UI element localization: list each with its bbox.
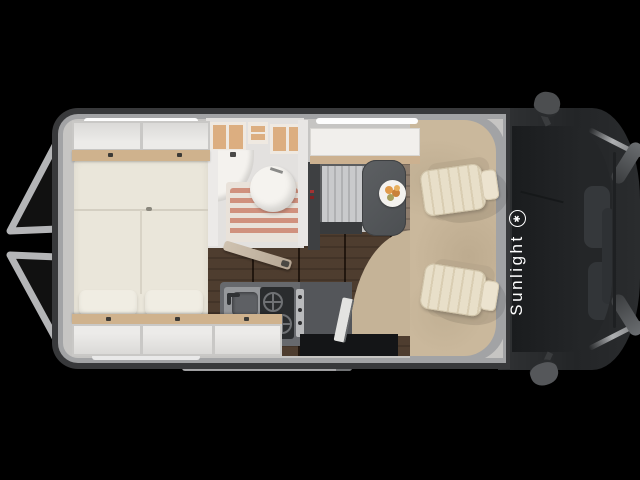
tall-cabinet [308, 162, 320, 250]
camper-floorplan-scene: Sunlight ✱ [0, 0, 640, 480]
swivel-seat-bottom [419, 260, 502, 321]
fridge-vent-unit [320, 164, 366, 226]
seat-cushion [419, 163, 487, 217]
shelf-slot [251, 126, 265, 132]
shelf-slot [251, 134, 265, 140]
cabinet-wood-edge-top [72, 150, 210, 161]
cabinet-detail [310, 190, 314, 193]
shelf-divider [286, 124, 289, 154]
cabinet-detail [310, 196, 314, 199]
brand-logo-icon: ✱ [509, 210, 526, 227]
hob-knob [298, 295, 302, 299]
mattress-seam-joint [146, 207, 152, 211]
swivel-toilet [250, 166, 296, 212]
shelf-divider [226, 122, 229, 152]
hob-knob [298, 308, 302, 312]
fridge-base [320, 222, 362, 234]
cabinet-latch [108, 153, 113, 157]
mattress-seam [140, 210, 142, 294]
window-top-right [316, 118, 418, 124]
basin-faucet [230, 152, 236, 157]
hob-knob [298, 321, 302, 325]
cabinet-divider [140, 121, 143, 151]
cabinet-latch [175, 317, 180, 321]
fruit [387, 194, 394, 201]
cabinet-divider [212, 324, 215, 356]
swivel-seat-top [419, 159, 501, 219]
brand-lettering: Sunlight ✱ [504, 188, 530, 338]
sliding-door-opening [300, 334, 398, 356]
bathroom-partition-wall [298, 120, 308, 246]
pillow-left [79, 290, 137, 316]
cabinet-latch [106, 317, 111, 321]
door-handle [281, 260, 290, 268]
cabinet-latch [244, 317, 249, 321]
brand-name-text: Sunlight [507, 234, 527, 315]
sideboard-top [310, 128, 420, 156]
cabinet-divider [140, 324, 143, 356]
bathroom-wall [208, 150, 218, 246]
pillow-right [145, 290, 203, 316]
fruit [394, 185, 400, 191]
rear-door-frame-top [10, 140, 58, 231]
cabinet-latch [177, 153, 182, 157]
hob-burner [263, 292, 283, 312]
hood-crease [613, 152, 616, 328]
overhead-cabinets-bottom [72, 324, 282, 356]
center-console [602, 208, 612, 304]
rear-door-frame-bottom [10, 255, 58, 343]
sideboard-wood-edge [310, 156, 420, 164]
kitchen-faucet [227, 293, 240, 297]
seat-cushion [419, 262, 487, 317]
